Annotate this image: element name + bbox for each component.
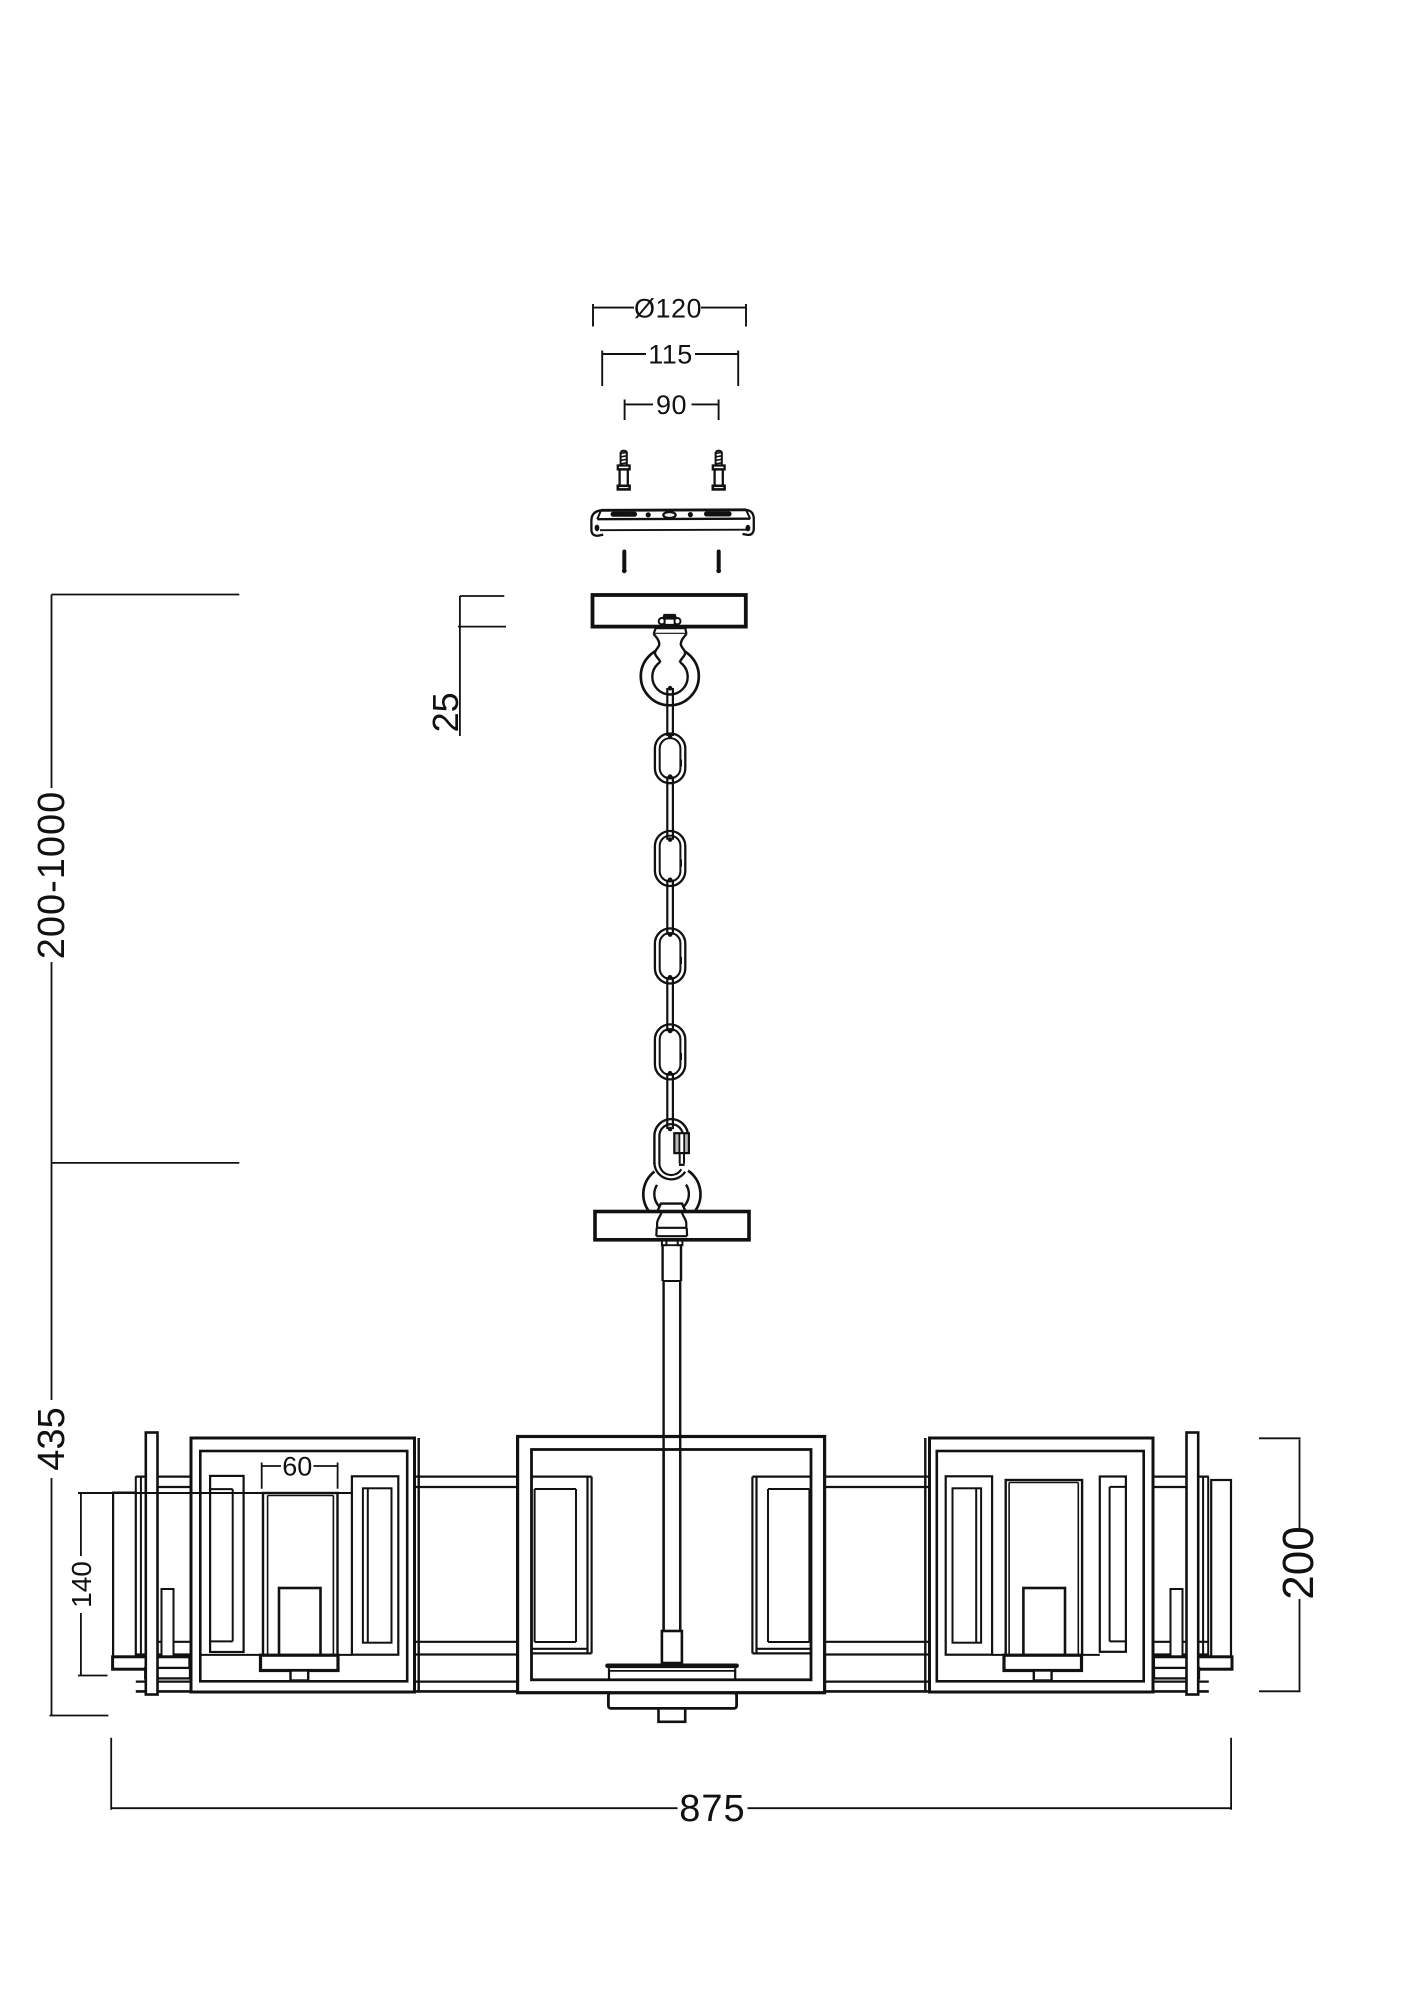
svg-text:140: 140 (66, 1561, 97, 1608)
svg-text:25: 25 (425, 692, 466, 732)
svg-text:90: 90 (656, 390, 687, 420)
svg-text:60: 60 (282, 1452, 312, 1482)
svg-text:Ø120: Ø120 (634, 294, 702, 324)
svg-text:200: 200 (1274, 1526, 1323, 1599)
svg-text:115: 115 (648, 340, 693, 370)
svg-text:200-1000: 200-1000 (31, 791, 73, 960)
svg-text:875: 875 (679, 1788, 745, 1830)
svg-text:435: 435 (31, 1407, 73, 1470)
